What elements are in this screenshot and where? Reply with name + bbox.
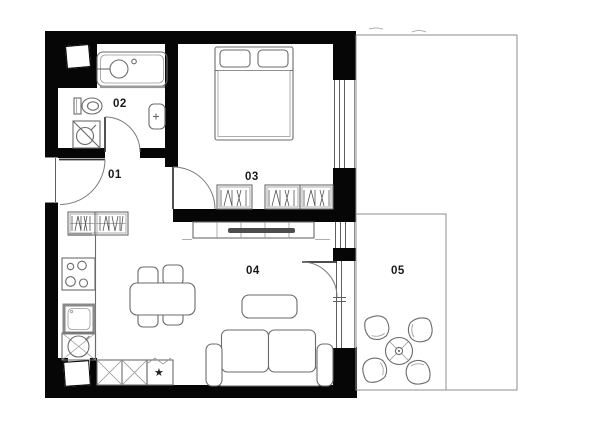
bathroom-door <box>105 117 140 152</box>
tv-unit <box>182 222 330 240</box>
room-label-bathroom: 02 <box>113 98 127 110</box>
room-label-terrace: 05 <box>391 265 405 277</box>
entrance-door <box>59 160 105 205</box>
outdoor-area-outline <box>356 28 517 390</box>
double-bed <box>215 47 293 140</box>
shaft-top <box>65 44 91 69</box>
wall-right-upper <box>333 44 356 80</box>
toilet <box>74 98 102 114</box>
dishwasher-star-symbol: ★ <box>154 368 164 379</box>
wall-top <box>55 31 356 44</box>
living-window <box>333 222 356 248</box>
floor-plan-canvas: 01 02 03 04 05 ★ <box>0 0 600 426</box>
terrace-seating <box>360 313 434 386</box>
wall-left-lower <box>45 203 58 398</box>
coffee-table <box>242 295 297 318</box>
balcony-door-glass <box>333 261 356 348</box>
sofa <box>206 330 333 386</box>
wall-right-mid <box>333 168 356 222</box>
wall-right-jamb <box>333 248 356 261</box>
wall-bathroom-south-left <box>58 148 105 158</box>
balcony-door <box>302 262 337 297</box>
washbasin <box>149 104 165 129</box>
room-label-hall: 01 <box>108 169 122 181</box>
washer-kitchen <box>62 333 96 360</box>
wall-right-lower <box>333 347 357 398</box>
wall-bedroom-west <box>165 44 178 167</box>
room-label-living: 04 <box>246 265 260 277</box>
stove <box>62 258 95 290</box>
washing-machine <box>73 121 100 148</box>
hall-wardrobe <box>68 212 128 236</box>
shaft-bottom <box>63 360 91 387</box>
wall-kitchen-stub <box>90 358 97 387</box>
entrance-opening <box>45 157 58 203</box>
dining-set <box>130 265 195 327</box>
bedroom-door <box>173 167 215 209</box>
bathtub <box>97 52 167 88</box>
kitchen-sink <box>64 305 94 333</box>
corner-cabinet <box>97 360 147 385</box>
bedroom-window <box>333 80 356 168</box>
room-label-bedroom: 03 <box>245 171 259 183</box>
wall-left-upper <box>45 31 58 157</box>
wall-bedroom-south <box>173 209 356 222</box>
bedroom-wardrobes <box>217 185 333 209</box>
